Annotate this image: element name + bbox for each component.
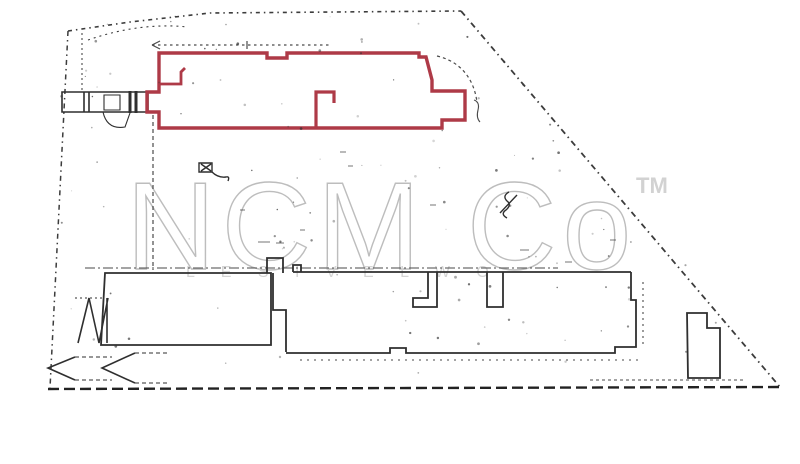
dotted-curve-top-right [437, 56, 477, 103]
boundary-left [50, 31, 68, 388]
watermark: NCM Co L E S I V E L W O TM [126, 158, 668, 296]
site-plan-canvas: NCM Co L E S I V E L W O TM [0, 0, 800, 464]
dock-inner-box [104, 95, 120, 110]
highlighted-building-outline [147, 53, 465, 128]
boundary-corner-curve [88, 26, 188, 40]
boundary-top [68, 11, 461, 31]
boundary-bottom [48, 387, 780, 389]
arrow-1-tails [75, 357, 112, 380]
arrow-left-1 [48, 357, 75, 380]
dock-divider-right [130, 91, 136, 113]
dock-door-swing [103, 112, 130, 127]
red-footprint-inner-wall [159, 68, 185, 84]
road-arrows [48, 298, 168, 383]
curl-mark [474, 100, 480, 122]
red-footprint-main [147, 53, 465, 128]
trademark-symbol: TM [636, 173, 668, 198]
scanned-site-plan-page: NCM Co L E S I V E L W O TM [0, 0, 800, 464]
dock-structure [62, 91, 148, 127]
red-footprint-hook [316, 92, 334, 128]
arrow-2-tails [135, 353, 168, 383]
dock-divider-left [84, 92, 89, 112]
